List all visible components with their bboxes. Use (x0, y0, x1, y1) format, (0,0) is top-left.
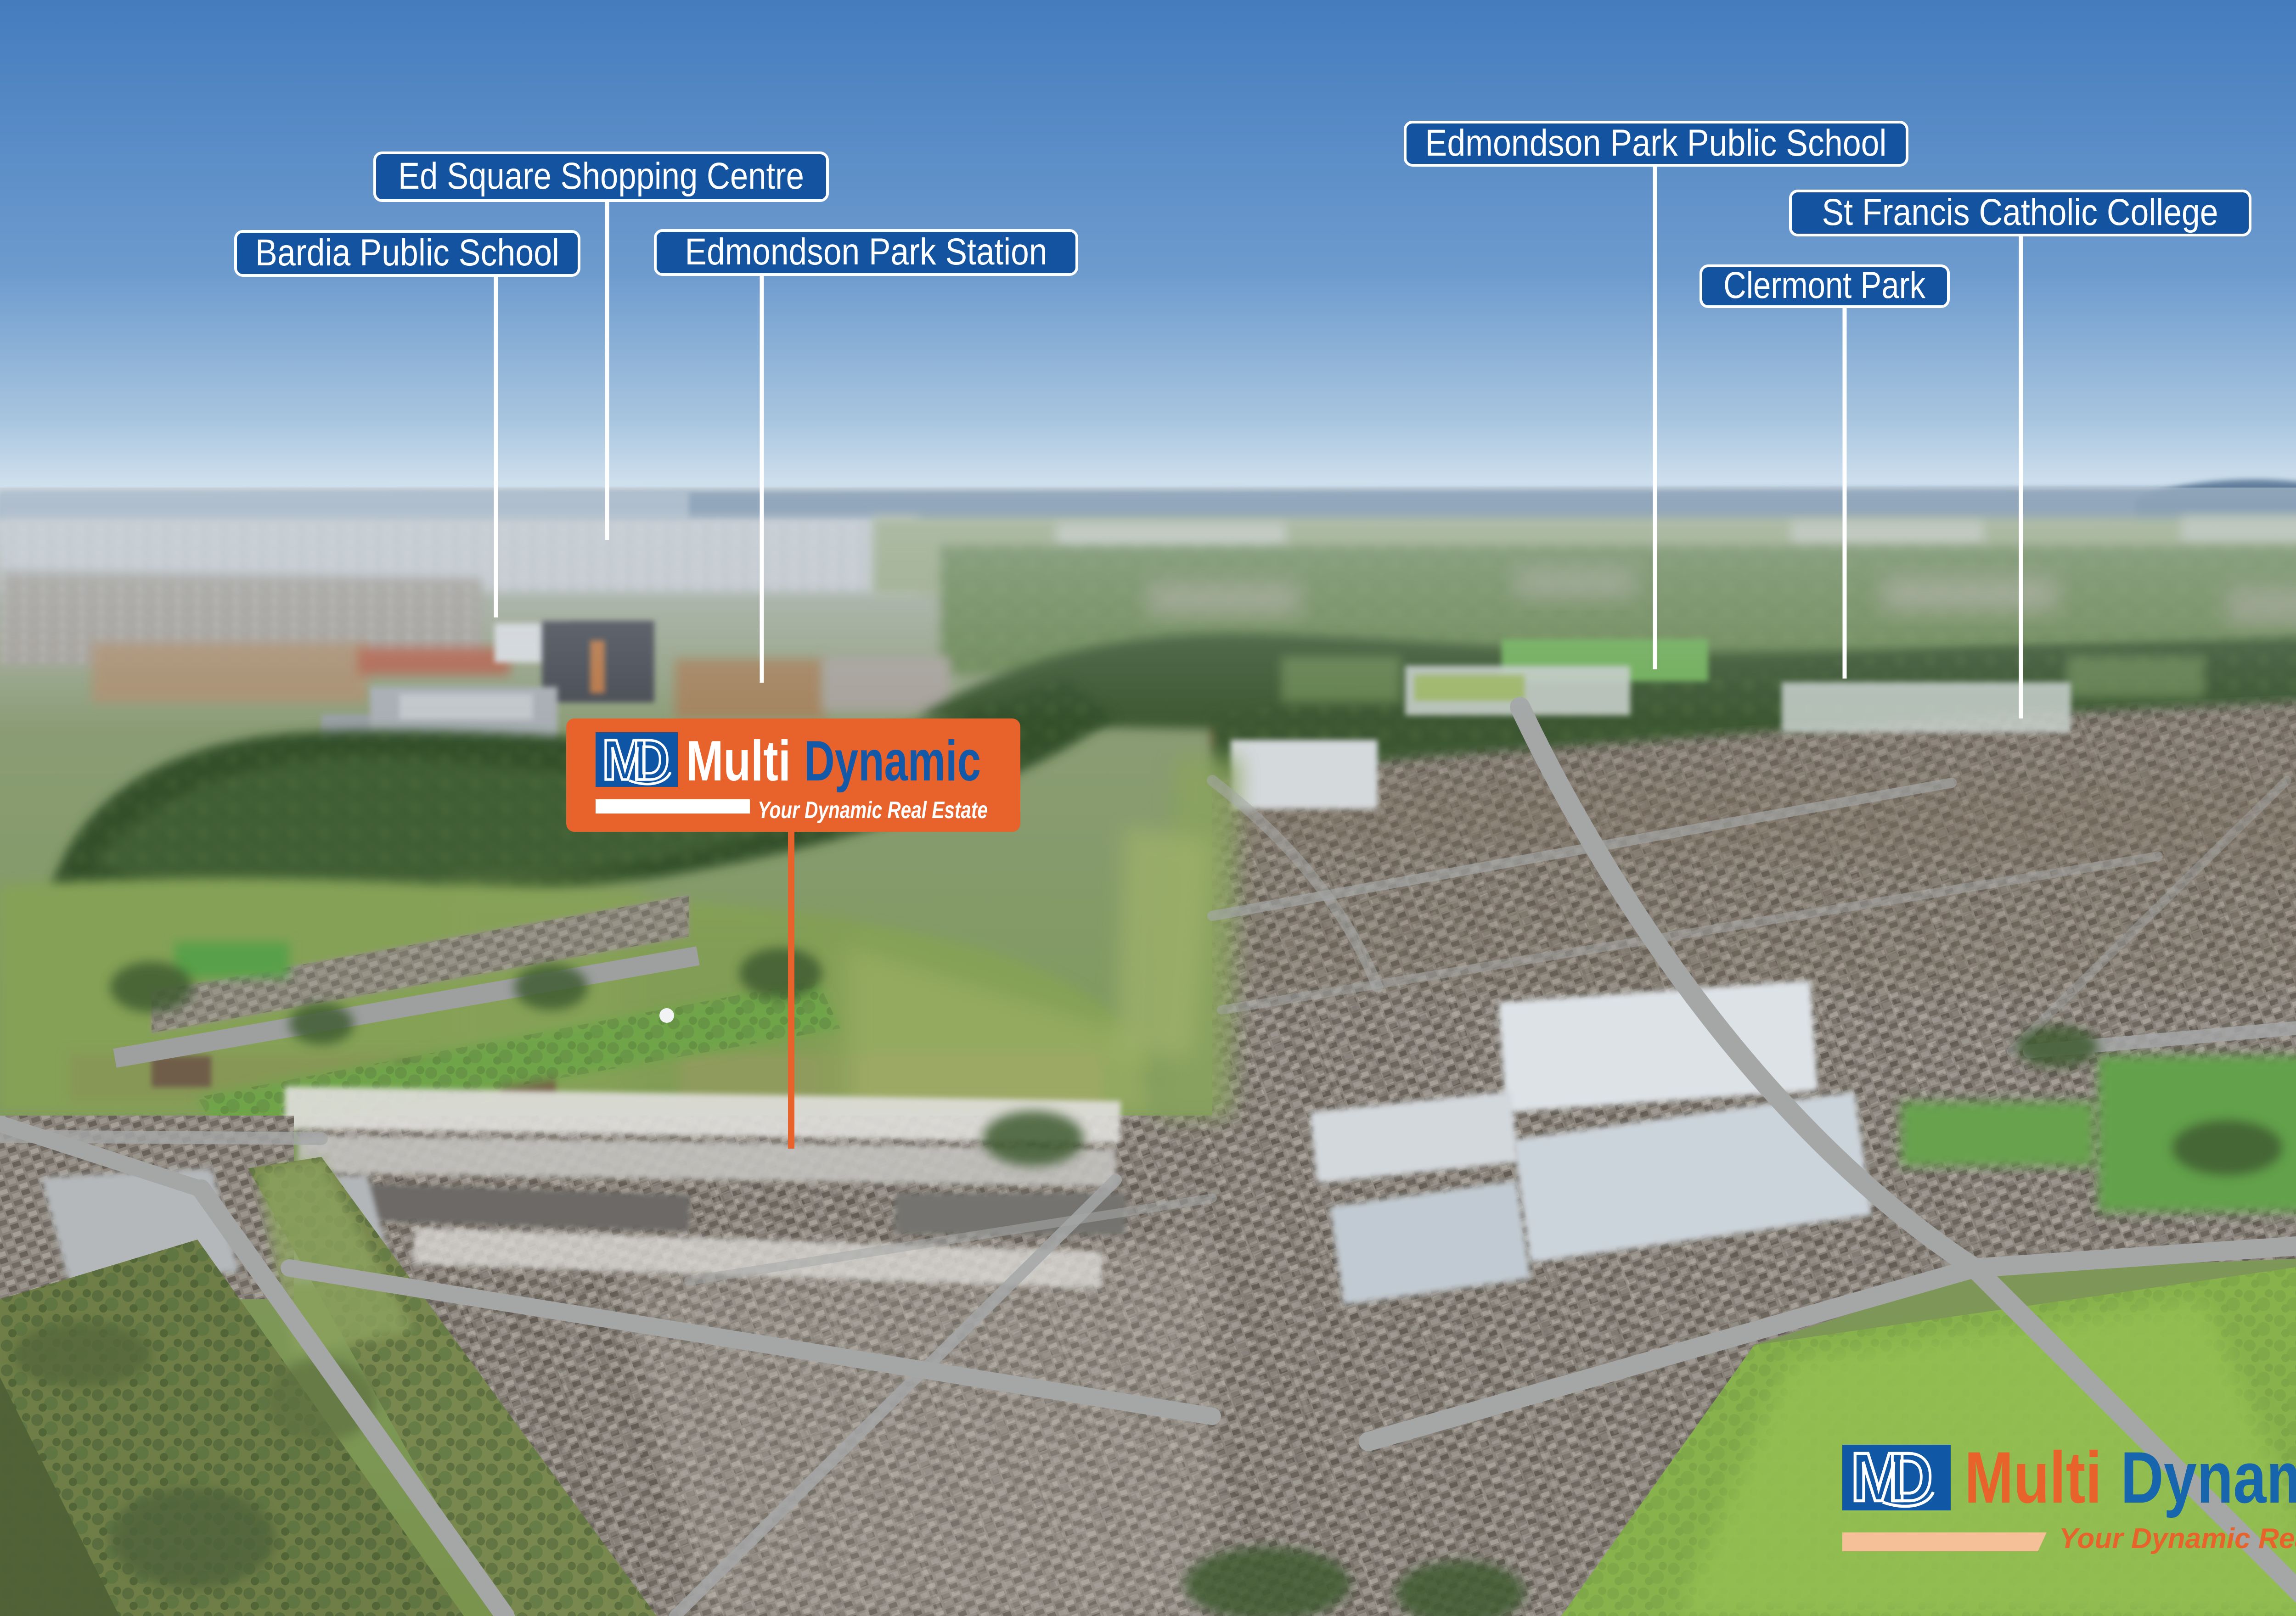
svg-text:Your Dynamic Real Estate: Your Dynamic Real Estate (2059, 1523, 2296, 1554)
svg-text:Multi: Multi (686, 729, 791, 793)
svg-text:Dynamic: Dynamic (804, 729, 981, 793)
svg-text:Ed Square Shopping Centre: Ed Square Shopping Centre (398, 155, 804, 197)
svg-text:Edmondson Park Public School: Edmondson Park Public School (1425, 122, 1887, 164)
svg-text:Dynamic: Dynamic (2121, 1436, 2296, 1518)
svg-text:Your Dynamic Real Estate: Your Dynamic Real Estate (758, 797, 988, 824)
svg-text:Bardia Public School: Bardia Public School (255, 232, 559, 274)
svg-text:Clermont Park: Clermont Park (1723, 264, 1926, 306)
svg-text:Edmondson Park Station: Edmondson Park Station (685, 231, 1047, 273)
svg-text:D: D (1888, 1438, 1933, 1515)
svg-text:Multi: Multi (1964, 1436, 2102, 1518)
svg-text:St Francis Catholic College: St Francis Catholic College (1822, 191, 2218, 233)
